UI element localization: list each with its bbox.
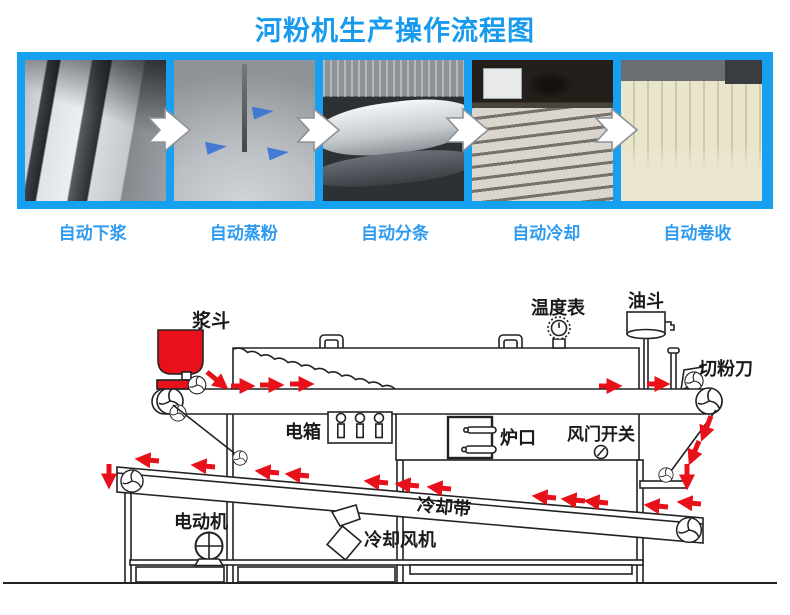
photo-strip-cutting (323, 60, 464, 201)
photo-detail (242, 64, 247, 151)
page-title: 河粉机生产操作流程图 (0, 9, 790, 48)
frame-brace (136, 567, 224, 582)
belt-pulley-icon (696, 388, 722, 414)
flow-arrow (207, 372, 218, 381)
photo-slurry-feeding (25, 60, 166, 201)
frame-brace (410, 565, 632, 574)
step-arrow-icon (445, 106, 491, 154)
flow-arrow (298, 475, 309, 476)
flow-arrow (597, 502, 608, 503)
photo-detail (205, 142, 227, 155)
lid-handle-icon (499, 335, 522, 348)
label-furnace-opening: 炉口 (500, 427, 536, 448)
machine-diagram: 浆斗 温度表 油斗 切粉刀 电箱 炉口 风门开关 冷却带 冷却风机 电动机 (0, 260, 790, 615)
flow-arrow (706, 416, 711, 429)
frame-brace (238, 567, 395, 582)
temperature-gauge-icon (548, 317, 570, 348)
flow-arrow (545, 497, 556, 498)
idler-wheel-icon (659, 468, 673, 482)
damper-knob-icon (595, 446, 608, 459)
switch-panel (328, 412, 392, 443)
flow-arrow (574, 500, 585, 501)
photo-detail (483, 68, 522, 98)
photo-strip (17, 52, 773, 209)
label-cutting-knife: 切粉刀 (699, 358, 753, 379)
step-label-rolling: 自动卷收 (622, 219, 773, 244)
furnace-door-icon (448, 417, 496, 458)
idler-wheel-icon (233, 451, 247, 465)
flow-arrow (657, 506, 668, 507)
label-electric-box: 电箱 (285, 421, 321, 442)
photo-detail (526, 71, 574, 99)
photo-steaming (174, 60, 315, 201)
motor-icon (195, 533, 223, 566)
flow-arrow (440, 488, 451, 489)
step-arrow-icon (147, 106, 193, 154)
flow-arrow (268, 472, 279, 473)
photo-cooling (472, 60, 613, 201)
label-motor: 电动机 (174, 511, 228, 532)
photo-rolling-up (621, 60, 762, 201)
label-temperature-gauge: 温度表 (531, 297, 586, 318)
photo-detail (267, 147, 289, 160)
photo-detail (621, 145, 762, 201)
flow-arrow (690, 503, 701, 504)
flow-arrow (377, 482, 388, 483)
lid-handle-icon (320, 335, 343, 348)
flow-arrow (204, 466, 215, 467)
step-label-steaming: 自动蒸粉 (168, 219, 319, 244)
step-arrow-icon (594, 106, 640, 154)
step-label-cutting: 自动分条 (319, 219, 470, 244)
main-conveyor-belt (152, 389, 722, 414)
flow-arrow (148, 460, 159, 461)
step-label-slurry: 自动下浆 (17, 219, 168, 244)
step-labels-row: 自动下浆 自动蒸粉 自动分条 自动冷却 自动卷收 (17, 219, 773, 244)
cutting-knife-icon (668, 348, 703, 390)
infographic-canvas: 河粉机生产操作流程图 (0, 0, 790, 615)
photo-detail (252, 107, 274, 120)
label-air-damper-switch: 风门开关 (567, 424, 635, 444)
flow-arrow (408, 485, 419, 486)
cooling-fan-icon (327, 505, 361, 560)
slurry-hopper-shape (157, 330, 206, 394)
step-label-cooling: 自动冷却 (471, 219, 622, 244)
label-cooling-fan: 冷却风机 (364, 529, 436, 550)
step-arrow-icon (296, 106, 342, 154)
label-oil-hopper: 油斗 (628, 290, 664, 311)
frame-leg (125, 490, 131, 583)
photo-detail (25, 60, 166, 201)
photo-detail (323, 60, 464, 97)
flow-arrow (694, 441, 699, 453)
steam-hood-curtain (234, 348, 396, 390)
label-slurry-hopper: 浆斗 (192, 309, 230, 332)
oil-hopper-shape (627, 312, 674, 389)
photo-detail (725, 60, 762, 84)
